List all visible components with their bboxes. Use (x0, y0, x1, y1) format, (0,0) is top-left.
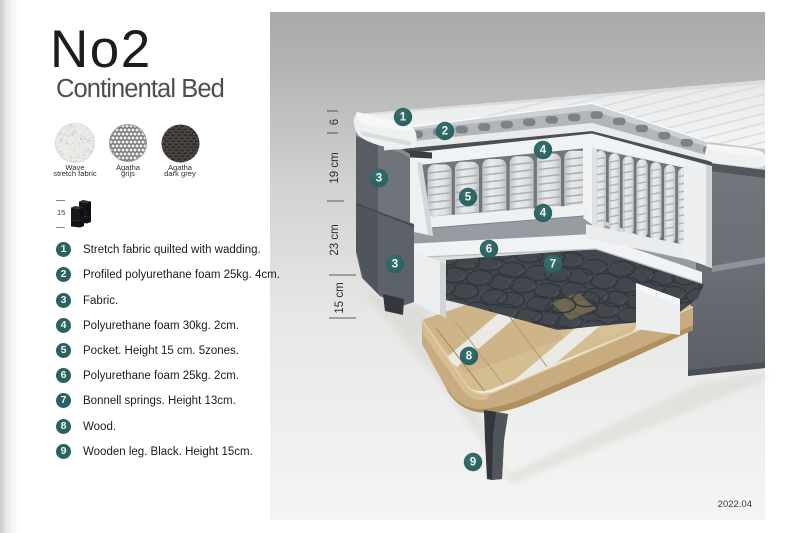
svg-text:15 cm: 15 cm (334, 282, 346, 313)
svg-text:23 cm: 23 cm (329, 224, 341, 255)
svg-text:7: 7 (550, 259, 556, 271)
svg-text:3: 3 (392, 259, 398, 271)
svg-text:4: 4 (540, 145, 547, 157)
svg-text:8: 8 (466, 351, 473, 363)
svg-text:19 cm: 19 cm (329, 152, 341, 183)
svg-text:4: 4 (540, 208, 547, 220)
svg-text:1: 1 (400, 112, 407, 124)
svg-text:2: 2 (442, 126, 448, 138)
svg-text:6: 6 (486, 244, 492, 256)
svg-text:3: 3 (376, 173, 382, 185)
svg-text:2022.04: 2022.04 (718, 499, 752, 510)
svg-text:6: 6 (329, 119, 341, 125)
svg-text:9: 9 (470, 457, 476, 469)
svg-text:5: 5 (465, 192, 472, 204)
